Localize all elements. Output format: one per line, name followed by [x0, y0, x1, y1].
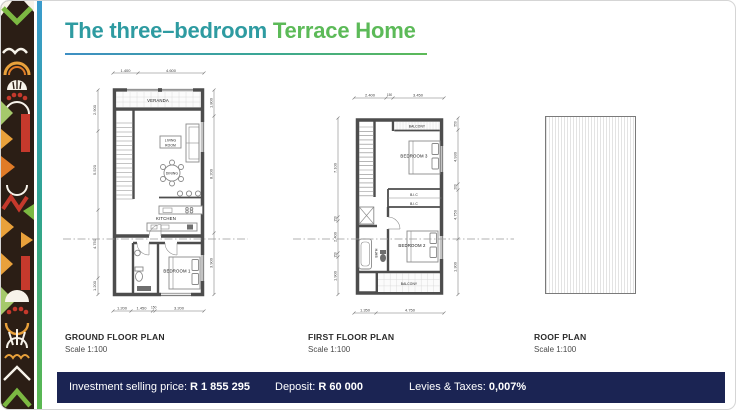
caption-roof-plan: ROOF PLAN Scale 1:100 [534, 332, 586, 354]
roof-plan-title: ROOF PLAN [534, 332, 586, 342]
title-part-1: The three–bedroom [65, 18, 267, 43]
dim-label: 4.750 [453, 209, 458, 220]
dim-label: 4.750 [405, 308, 416, 313]
levies-value: 0,007% [489, 381, 526, 393]
dim-label: 1.450 [136, 305, 147, 310]
dim-label: 4.750 [92, 238, 97, 249]
price-value: R 1 855 295 [190, 381, 250, 393]
room-label-living: LIVING [165, 139, 177, 143]
caption-ground-floor: GROUND FLOOR PLAN Scale 1:100 [65, 332, 165, 354]
dim-label: 1.300 [453, 261, 458, 272]
room-label-bic-top: B.I.C [410, 193, 418, 197]
dim-label: 150 [151, 306, 157, 310]
dim-label: 150 [334, 252, 338, 258]
price-label: Investment selling price: [69, 381, 187, 393]
deposit-value: R 60 000 [318, 381, 363, 393]
dim-label: 2.900 [92, 104, 97, 115]
dim-label: 150 [334, 216, 338, 222]
dim-label: 3.200 [174, 305, 185, 310]
dim-label: 2.400 [365, 93, 376, 98]
dim-label: 150 [387, 93, 393, 97]
pricing-bar: Investment selling price:R 1 855 295 Dep… [57, 372, 725, 403]
caption-first-floor: FIRST FLOOR PLAN Scale 1:100 [308, 332, 394, 354]
dim-label: 3.900 [209, 257, 214, 268]
first-plan-title: FIRST FLOOR PLAN [308, 332, 394, 342]
dim-label: 2.400 [333, 231, 338, 242]
dim-label: 4.600 [166, 68, 177, 73]
page-title: The three–bedroom Terrace Home [65, 18, 416, 44]
room-label-bedroom2: BEDROOM 2 [398, 243, 426, 248]
dim-label: 550 [454, 121, 458, 127]
dim-label: 4.930 [453, 151, 458, 162]
title-underline [65, 53, 427, 55]
roof-plan-scale: Scale 1:100 [534, 345, 586, 354]
slide: The three–bedroom Terrace Home 1.400 4.6… [0, 0, 736, 410]
room-label-veranda: VERANDA [147, 98, 169, 103]
accent-gradient-line [37, 1, 42, 410]
dim-label: 1.350 [360, 308, 371, 313]
levies-taxes: Levies & Taxes:0,007% [409, 372, 526, 403]
first-floor-plan-drawing: 2.400 150 3.450 7.100 150 2.400 150 1.90… [291, 91, 516, 321]
room-label-balcony-bottom: BALCONY [401, 282, 418, 286]
room-label-living2: ROOM [165, 143, 176, 147]
dim-label: 1.200 [92, 280, 97, 291]
room-label-bedroom3: BEDROOM 3 [400, 154, 428, 159]
room-label-dining: DINING [166, 171, 178, 175]
dim-label: 7.100 [333, 162, 338, 173]
dim-label: 8.200 [209, 168, 214, 179]
ground-floor-plan-drawing: 1.400 4.600 2.900 5.520 4.750 1.200 1.80… [61, 67, 266, 321]
ground-plan-title: GROUND FLOOR PLAN [65, 332, 165, 342]
levies-label: Levies & Taxes: [409, 381, 486, 393]
room-label-bedroom1: BEDROOM 1 [163, 269, 191, 274]
title-part-2: Terrace Home [273, 18, 416, 43]
dim-label: 1.800 [209, 97, 214, 108]
ground-plan-scale: Scale 1:100 [65, 345, 165, 354]
room-label-bath: BATH [375, 248, 379, 257]
dim-label: 1.200 [117, 305, 128, 310]
roof-plan-drawing [545, 116, 636, 294]
first-plan-scale: Scale 1:100 [308, 345, 394, 354]
deposit: Deposit:R 60 000 [275, 372, 363, 403]
room-label-bic-bottom: B.I.C [410, 202, 418, 206]
dim-label: 3.450 [413, 93, 424, 98]
dim-label: 5.520 [92, 164, 97, 175]
dim-label: 1.900 [333, 270, 338, 281]
dim-label: 1.400 [120, 68, 131, 73]
african-pattern-border [1, 1, 34, 410]
dim-label: 200 [454, 184, 458, 190]
room-label-balcony-top: BALCONY [409, 124, 426, 128]
room-label-kitchen: KITCHEN [156, 216, 176, 221]
investment-price: Investment selling price:R 1 855 295 [69, 372, 250, 403]
deposit-label: Deposit: [275, 381, 315, 393]
